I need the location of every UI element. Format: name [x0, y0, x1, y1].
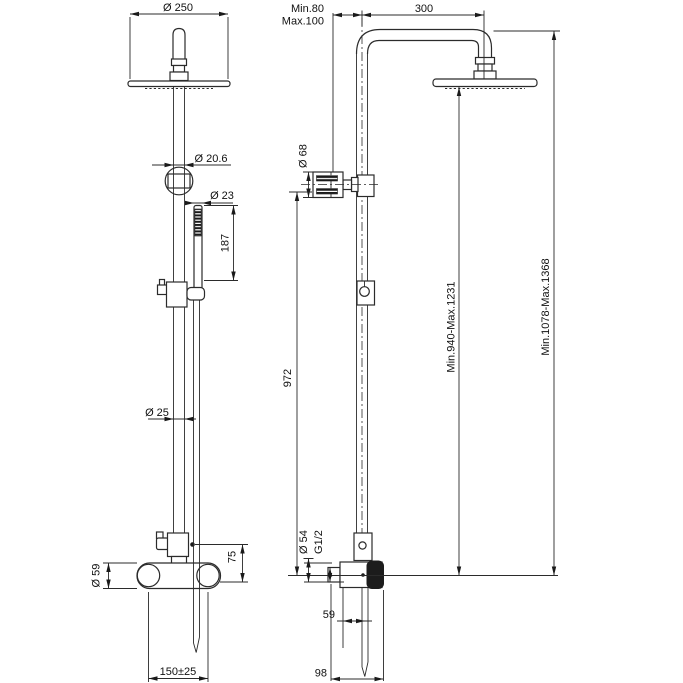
shower-arm [357, 30, 538, 89]
front-view: Ø 250 Ø 20.6 Ø 23 187 Ø 25 [91, 2, 249, 682]
side-view: Min.80 Max.100 300 Ø 68 972 Min.940-Max.… [282, 3, 560, 681]
dim-thread-size-label: G1/2 [313, 530, 325, 554]
head-nut-3 [170, 72, 188, 81]
diverter-knob [157, 538, 169, 550]
head-disc [128, 81, 230, 87]
mixer-inlet-left [137, 564, 159, 586]
head-disc-side [433, 79, 537, 87]
bracket-body [167, 282, 188, 307]
shower-column-drawing: Ø 250 Ø 20.6 Ø 23 187 Ø 25 [0, 0, 683, 683]
wand-spray-face [195, 209, 201, 236]
wand-holder-cup [187, 288, 205, 301]
dim-escutcheon-diameter-label: Ø 54 [298, 530, 310, 554]
dim-mixer-diameter: Ø 59 [91, 563, 138, 589]
head-nut-2 [174, 66, 185, 73]
dim-inlet-spacing-label: 150±25 [160, 666, 197, 678]
mixer-screw-dot [361, 573, 365, 577]
dim-total-height-range: Min.1078-Max.1368 [494, 31, 561, 576]
dim-arm-reach-label: 300 [415, 3, 433, 15]
head-pivot-cap [173, 29, 185, 61]
dim-pipe-top-diameter-label: Ø 20.6 [194, 153, 227, 165]
dim-diverter-offset-label: 75 [227, 551, 239, 563]
head-nut-1 [172, 59, 187, 66]
dim-total-height-range-label: Min.1078-Max.1368 [540, 258, 552, 355]
dim-handshower-diameter-label: Ø 23 [210, 190, 234, 202]
diverter-valve [157, 532, 195, 564]
dim-head-height-range-label: Min.940-Max.1231 [446, 281, 458, 372]
arm-nut-3 [474, 71, 496, 79]
dim-wall-offset-max-label: Max.100 [282, 16, 324, 28]
mixer-body-front [137, 563, 221, 589]
dim-pipe-diameter: Ø 25 [145, 407, 196, 421]
dim-head-height-range: Min.940-Max.1231 [446, 87, 462, 576]
dim-pipe-diameter-label: Ø 25 [145, 407, 169, 419]
arm-nut-2 [478, 64, 492, 71]
dim-wall-offset-min-label: Min.80 [291, 3, 324, 15]
hand-shower-wand [194, 206, 202, 291]
dim-holder-diameter: Ø 68 [298, 144, 315, 197]
riser-pipe [174, 87, 185, 534]
dim-column-height: 972 [282, 192, 312, 576]
dim-mixer-depth-label: 98 [315, 668, 327, 680]
dim-mixer-diameter-label: Ø 59 [91, 564, 103, 588]
overhead-shower-head [128, 29, 230, 89]
arm-nut-1 [476, 58, 495, 65]
dim-head-diameter-label: Ø 250 [163, 2, 193, 14]
holder-knurl-bottom [317, 189, 338, 195]
riser-pipe-side [357, 18, 368, 533]
slider-bracket-side [357, 281, 375, 305]
mixer-side [328, 561, 384, 589]
dim-holder-diameter-label: Ø 68 [298, 144, 310, 168]
hand-shower-hose [194, 300, 200, 653]
dim-handshower-length: 187 [204, 206, 238, 281]
dim-column-height-label: 972 [282, 369, 294, 387]
technical-drawing-page: Ø 250 Ø 20.6 Ø 23 187 Ø 25 [0, 0, 683, 683]
mixer-handle-knob [367, 561, 384, 589]
dim-pipe-top-diameter: Ø 20.6 [152, 153, 231, 167]
hose-side [362, 588, 368, 677]
dim-handshower-length-label: 187 [220, 234, 232, 252]
mixer-inlet-right [197, 564, 219, 586]
holder-pipe-clamp [358, 175, 375, 197]
dim-mixer-depth: 98 [315, 584, 384, 681]
wall-holder-ring [165, 167, 193, 195]
dim-handshower-diameter: Ø 23 [185, 190, 234, 205]
diverter-body [168, 533, 189, 557]
dim-wall-offset-and-arm-reach: Min.80 Max.100 300 [282, 3, 484, 172]
dim-hose-offset-label: 59 [323, 609, 335, 621]
holder-knurl-top [317, 176, 338, 182]
diverter-side [354, 533, 372, 561]
handshower-holder-side [301, 172, 378, 198]
diverter-outlet-pin [190, 542, 195, 547]
dim-hose-offset: 59 [323, 588, 372, 649]
